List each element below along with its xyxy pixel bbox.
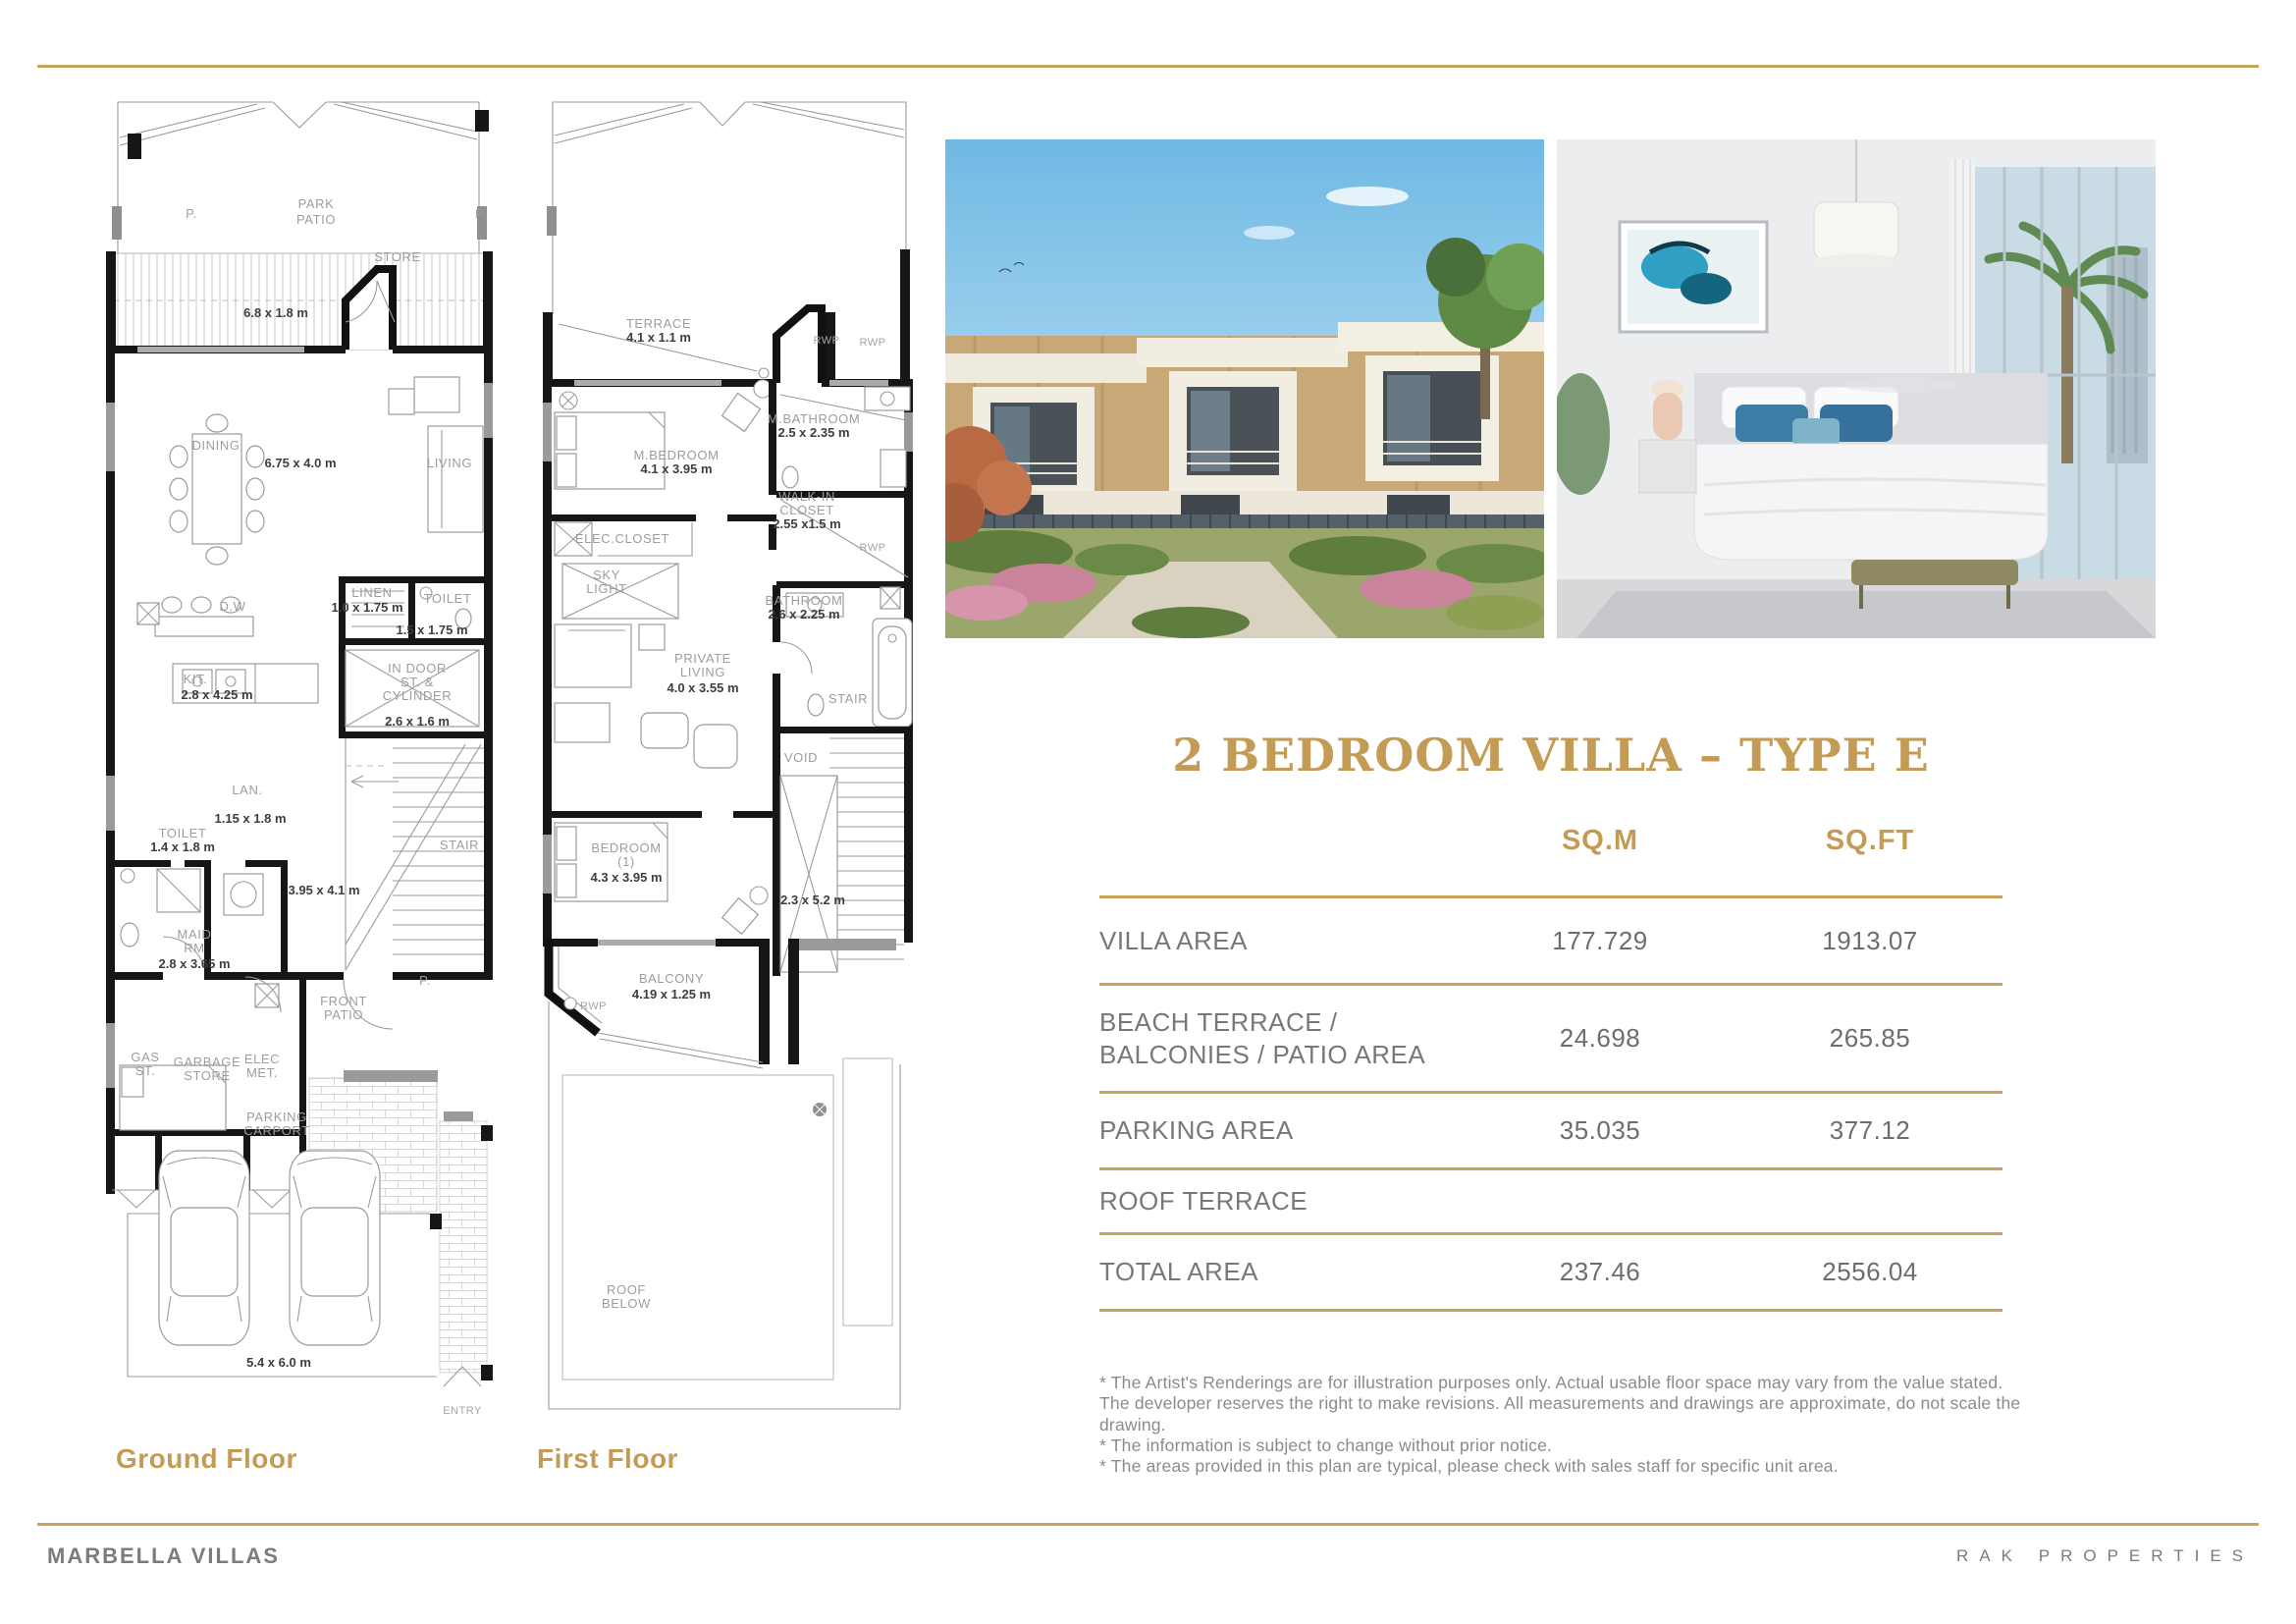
- first-floor-label: First Floor: [537, 1443, 678, 1475]
- plan-label: GAS: [131, 1050, 159, 1064]
- plan-label: STAIR: [440, 838, 479, 852]
- plan-label: DINING: [191, 438, 240, 453]
- plan-label: VOID: [784, 750, 818, 765]
- row-sqm: 177.729: [1463, 926, 1737, 956]
- ground-floor-drawing: P.PARKPATIOSTORE6.8 x 1.8 mP.DINING6.75 …: [98, 88, 501, 1429]
- plan-label: 3.95 x 4.1 m: [289, 883, 360, 897]
- plan-label: 2.6 x 1.6 m: [385, 714, 450, 729]
- table-row: BEACH TERRACE / BALCONIES / PATIO AREA 2…: [1099, 983, 2002, 1091]
- table-row: TOTAL AREA 237.46 2556.04: [1099, 1232, 2002, 1312]
- area-table-header: SQ.M SQ.FT: [1099, 817, 2002, 895]
- top-divider: [37, 65, 2259, 68]
- plan-label: IN DOOR: [388, 661, 447, 676]
- plan-label: PARKING: [246, 1110, 307, 1124]
- table-row: PARKING AREA 35.035 377.12: [1099, 1091, 2002, 1167]
- plan-label: STAIR: [828, 691, 868, 706]
- ground-floor-plan: P.PARKPATIOSTORE6.8 x 1.8 mP.DINING6.75 …: [98, 88, 501, 1429]
- plan-label: 2.55 x1.5 m: [773, 516, 840, 531]
- footer-project-name: MARBELLA VILLAS: [47, 1543, 280, 1569]
- plan-label: BELOW: [602, 1296, 651, 1311]
- plan-label: 6.8 x 1.8 m: [243, 305, 308, 320]
- plan-label: LIVING: [680, 665, 725, 679]
- row-sqft: 265.85: [1737, 1023, 2002, 1054]
- plan-label: RM: [184, 941, 204, 955]
- plan-label: WALK-IN: [778, 489, 835, 504]
- plan-label: LIVING: [427, 456, 472, 470]
- page-title: 2 BEDROOM VILLA – TYPE E: [1099, 729, 2002, 782]
- row-sqm: 35.035: [1463, 1115, 1737, 1146]
- row-sqm: 24.698: [1463, 1023, 1737, 1054]
- plan-label: 4.3 x 3.95 m: [591, 870, 663, 885]
- plan-label: TERRACE: [626, 316, 691, 331]
- plan-label: MET.: [246, 1065, 278, 1080]
- plan-label: 2.5 x 2.35 m: [778, 425, 850, 440]
- plan-label: 4.1 x 3.95 m: [641, 461, 713, 476]
- plan-label: TOILET: [159, 826, 207, 840]
- table-row: ROOF TERRACE: [1099, 1167, 2002, 1232]
- plan-label: MAID: [178, 927, 212, 942]
- plan-label: ST.: [135, 1063, 156, 1078]
- plan-label: CYLINDER: [383, 688, 453, 703]
- plan-label: 2.3 x 5.2 m: [780, 893, 845, 907]
- plan-label: BALCONY: [639, 971, 704, 986]
- plan-label: BATHROOM: [766, 593, 843, 608]
- row-label: PARKING AREA: [1099, 1114, 1463, 1147]
- plan-label: RWP: [814, 335, 840, 347]
- first-floor-plan: TERRACE4.1 x 1.1 mRWPRWPM.BATHROOM2.5 x …: [535, 88, 923, 1429]
- plan-label: 1.4 x 1.8 m: [150, 839, 215, 854]
- disclaimer-text: * The Artist's Renderings are for illust…: [1099, 1373, 2047, 1478]
- car-icon: [290, 1151, 380, 1345]
- plan-label: FRONT: [320, 994, 367, 1008]
- plan-label: CARPORT: [243, 1123, 310, 1138]
- plan-label: ELEC: [244, 1052, 280, 1066]
- column-header-sqft: SQ.FT: [1737, 817, 2002, 857]
- plan-label: ELEC.CLOSET: [575, 531, 669, 546]
- plan-label: 2.6 x 2.25 m: [769, 607, 840, 622]
- plan-label: 4.19 x 1.25 m: [632, 987, 711, 1001]
- plan-label: ROOF: [607, 1282, 646, 1297]
- plan-label: D.W: [219, 599, 245, 614]
- plan-label: 1.0 x 1.75 m: [332, 600, 403, 615]
- plan-label: PARK: [298, 196, 335, 211]
- area-table: SQ.M SQ.FT VILLA AREA 177.729 1913.07 BE…: [1099, 817, 2002, 1312]
- plan-label: (1): [617, 854, 635, 869]
- plan-label: RWP: [580, 1001, 607, 1012]
- plan-label: M.BEDROOM: [633, 448, 719, 462]
- plan-label: M.BATHROOM: [768, 411, 861, 426]
- plan-label: PATIO: [324, 1007, 363, 1022]
- row-sqm: 237.46: [1463, 1257, 1737, 1287]
- row-sqft: 2556.04: [1737, 1257, 2002, 1287]
- plan-label: ST. &: [400, 675, 434, 689]
- plan-label: STORE: [184, 1068, 231, 1083]
- interior-photo: [1557, 139, 2156, 638]
- plan-label: ENTRY: [443, 1405, 482, 1417]
- table-row: VILLA AREA 177.729 1913.07: [1099, 895, 2002, 983]
- car-icon: [159, 1151, 249, 1345]
- first-floor-drawing: TERRACE4.1 x 1.1 mRWPRWPM.BATHROOM2.5 x …: [535, 88, 923, 1429]
- plan-label: 2.8 x 3.65 m: [159, 956, 231, 971]
- row-label: BEACH TERRACE / BALCONIES / PATIO AREA: [1099, 1006, 1463, 1070]
- plan-label: 1.5 x 1.75 m: [397, 623, 468, 637]
- plan-label: RWP: [860, 337, 886, 349]
- plan-label: PATIO: [296, 212, 336, 227]
- plan-label: SKY: [593, 568, 620, 582]
- brochure-page: P.PARKPATIOSTORE6.8 x 1.8 mP.DINING6.75 …: [0, 0, 2296, 1624]
- plan-label: P.: [475, 206, 487, 221]
- exterior-photo: [945, 139, 1544, 638]
- plan-label: PRIVATE: [674, 651, 731, 666]
- column-header-sqm: SQ.M: [1463, 817, 1737, 857]
- plan-label: LIGHT: [586, 581, 626, 596]
- plan-label: P.: [186, 206, 197, 221]
- plan-label: RWP: [860, 542, 886, 554]
- footer-divider: [37, 1523, 2259, 1526]
- row-label: ROOF TERRACE: [1099, 1185, 1463, 1218]
- plan-label: GARBAGE: [174, 1055, 241, 1069]
- row-label: TOTAL AREA: [1099, 1256, 1463, 1288]
- ground-floor-label: Ground Floor: [116, 1443, 297, 1475]
- row-sqft: 1913.07: [1737, 926, 2002, 956]
- plan-label: LAN.: [232, 783, 262, 797]
- plan-label: KIT.: [184, 672, 208, 686]
- plan-label: 1.15 x 1.8 m: [215, 811, 287, 826]
- plan-label: 2.8 x 4.25 m: [182, 687, 253, 702]
- plan-label: STORE: [374, 249, 421, 264]
- plan-label: LINEN: [351, 585, 392, 600]
- plan-label: 4.0 x 3.55 m: [667, 680, 739, 695]
- plan-label: P.: [419, 973, 431, 988]
- row-sqft: 377.12: [1737, 1115, 2002, 1146]
- plan-label: 6.75 x 4.0 m: [265, 456, 337, 470]
- plan-label: 4.1 x 1.1 m: [626, 330, 691, 345]
- plan-label: TOILET: [424, 591, 472, 606]
- footer-developer-name: RAK PROPERTIES: [1956, 1546, 2254, 1566]
- plan-label: 5.4 x 6.0 m: [246, 1355, 311, 1370]
- plan-label: BEDROOM: [591, 840, 661, 855]
- row-label: VILLA AREA: [1099, 925, 1463, 957]
- plan-label: CLOSET: [779, 503, 834, 517]
